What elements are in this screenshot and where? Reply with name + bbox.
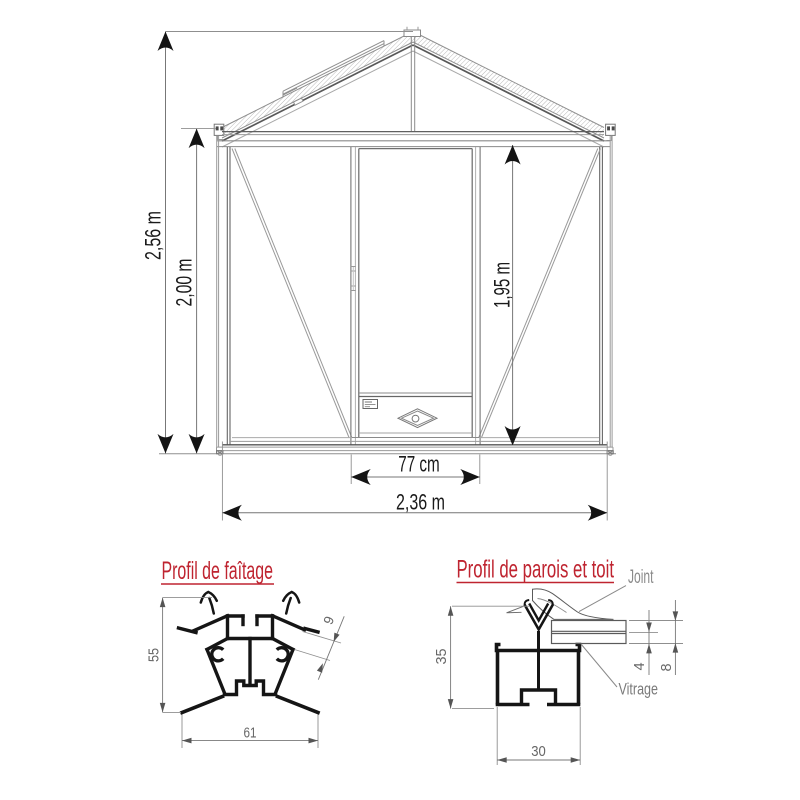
svg-text:8: 8	[659, 663, 675, 671]
svg-text:Profil de parois et toit: Profil de parois et toit	[457, 556, 615, 584]
svg-text:4: 4	[632, 662, 648, 670]
svg-text:1,95 m: 1,95 m	[490, 262, 515, 308]
svg-text:35: 35	[433, 649, 450, 665]
svg-text:Vitrage: Vitrage	[619, 680, 659, 699]
svg-text:77 cm: 77 cm	[398, 452, 440, 477]
svg-text:2,36 m: 2,36 m	[396, 490, 445, 515]
svg-text:61: 61	[244, 726, 257, 742]
svg-text:Joint: Joint	[628, 566, 654, 588]
svg-text:2,00 m: 2,00 m	[172, 259, 197, 307]
svg-text:30: 30	[531, 743, 546, 760]
svg-text:55: 55	[147, 648, 163, 662]
svg-text:2,56 m: 2,56 m	[141, 211, 166, 260]
svg-text:Profil de faîtage: Profil de faîtage	[162, 557, 274, 585]
